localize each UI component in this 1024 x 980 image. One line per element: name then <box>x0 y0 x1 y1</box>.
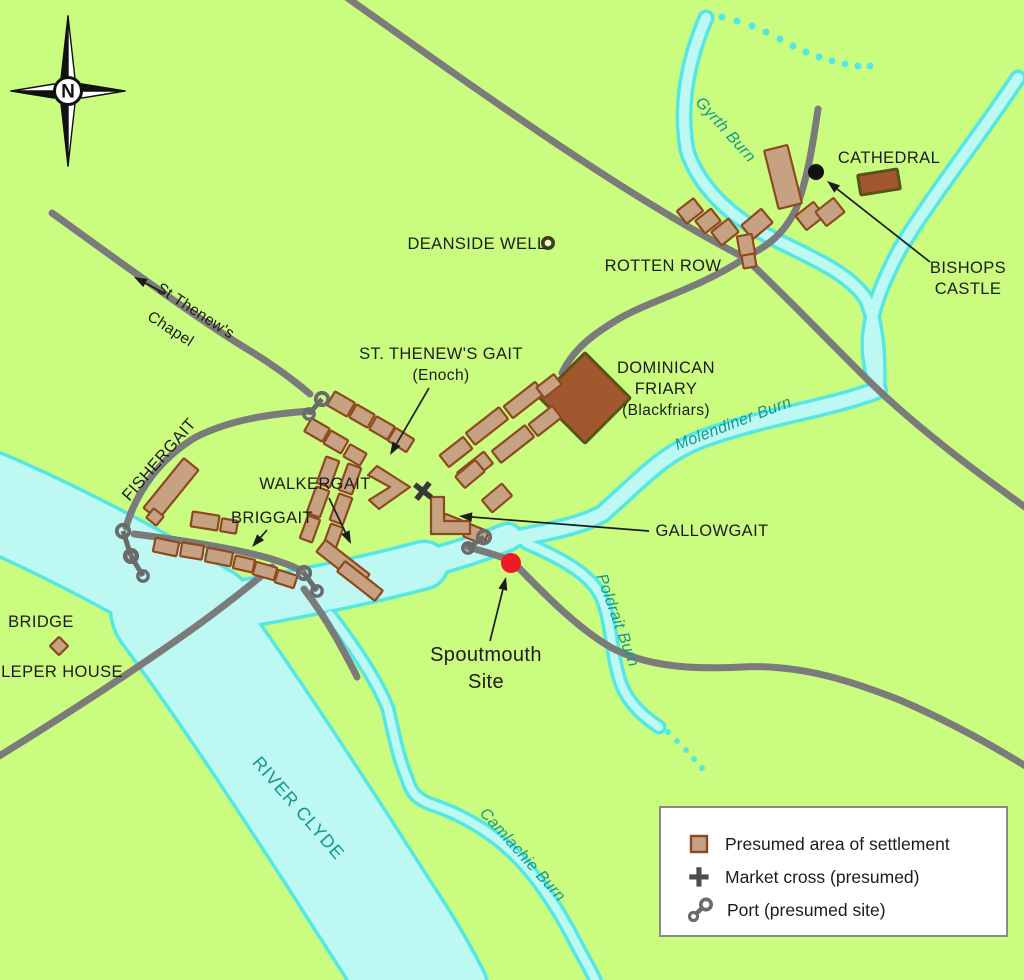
compass-rose: N <box>11 16 125 166</box>
gyrth-burn-dotted <box>749 23 756 30</box>
poldrait-burn-dotted <box>665 729 671 735</box>
spoutmouth-arrow-line <box>490 590 503 641</box>
port-icon <box>687 897 713 923</box>
bridge-building <box>50 637 68 655</box>
legend: Presumed area of settlement Market cross… <box>659 806 1008 937</box>
map-stage: CATHEDRALBISHOPSCASTLEROTTEN ROWDEANSIDE… <box>0 0 1024 980</box>
poldrait-burn-dotted <box>674 738 680 744</box>
settlement-building <box>482 484 512 513</box>
settlement-building <box>440 437 473 467</box>
settlement-building <box>492 425 534 463</box>
dominican-friary-label-1: DOMINICAN <box>617 359 715 377</box>
gyrth-burn-dotted <box>734 18 741 25</box>
spoutmouth-site-dot <box>501 553 521 573</box>
leper-house-label: LEPER HOUSE <box>1 663 123 681</box>
settlement-building <box>466 407 508 445</box>
gyrth-burn-dotted <box>842 61 849 68</box>
st-thenews-gait-arrow-line <box>397 388 429 444</box>
briggait-arrow-line <box>261 530 267 537</box>
legend-label-settlement: Presumed area of settlement <box>725 834 950 855</box>
cathedral-building <box>858 169 901 195</box>
bishops-castle-dot <box>808 164 824 180</box>
dominican-friary-label-3: (Blackfriars) <box>622 402 710 419</box>
gyrth-burn-label: Gyrth Burn <box>692 94 759 166</box>
settlement-building <box>190 511 219 530</box>
legend-label-port: Port (presumed site) <box>727 900 886 921</box>
briggait-label: BRIGGAIT <box>231 509 313 527</box>
gyrth-burn-dotted <box>867 63 874 70</box>
settlement-building <box>764 145 802 209</box>
st-thenews-gait-label-1: ST. THENEW'S GAIT <box>359 345 523 363</box>
poldrait-burn-dotted <box>691 756 697 762</box>
rotten-row-label: ROTTEN ROW <box>605 257 722 275</box>
gyrth-burn-dotted <box>790 43 797 50</box>
settlement-chevron-west <box>368 466 410 509</box>
settlement-building <box>180 542 204 559</box>
deanside-well-label: DEANSIDE WELL <box>407 235 546 253</box>
road-gallowgait-east <box>468 547 1024 770</box>
bridge-label: BRIDGE <box>8 613 74 631</box>
walkergait-label: WALKERGAIT <box>259 475 371 493</box>
legend-label-market-cross: Market cross (presumed) <box>725 867 920 888</box>
spoutmouth-arrow-head <box>498 577 507 591</box>
gyrth-burn-dotted <box>829 58 836 65</box>
gyrth-burn-dotted <box>763 29 770 36</box>
bishops-castle-arrow-head <box>827 181 840 193</box>
cathedral-label: CATHEDRAL <box>838 149 940 167</box>
dominican-friary-label-2: FRIARY <box>635 380 698 398</box>
gyrth-burn-dotted <box>816 54 823 61</box>
gallowgait-label: GALLOWGAIT <box>655 522 768 540</box>
st-thenews-gait-label-2: (Enoch) <box>412 367 469 384</box>
settlement-building <box>330 493 353 524</box>
spoutmouth-site-label-2: Site <box>468 671 504 693</box>
legend-row-market-cross: Market cross (presumed) <box>687 864 996 890</box>
settlement-swatch-icon <box>687 832 711 856</box>
poldrait-burn-dotted <box>699 765 705 771</box>
poldrait-burn-dotted <box>683 747 689 753</box>
market-cross-icon <box>687 865 711 889</box>
settlement-building <box>343 444 366 466</box>
settlement-building <box>741 253 756 268</box>
settlement-building <box>529 406 562 436</box>
spoutmouth-site-label-1: Spoutmouth <box>430 644 542 666</box>
castle-burn-water-edge <box>869 78 1018 390</box>
gyrth-burn-dotted <box>803 49 810 56</box>
bishops-castle-label-2: CASTLE <box>935 280 1002 298</box>
gyrth-burn-dotted <box>719 14 726 21</box>
compass-north-letter: N <box>61 82 75 103</box>
gyrth-burn-dotted <box>777 36 784 43</box>
bishops-castle-label-1: BISHOPS <box>930 259 1006 277</box>
camlachie-burn-label: Camlachie Burn <box>476 805 569 905</box>
settlement-building <box>815 198 844 226</box>
legend-row-port: Port (presumed site) <box>687 897 996 923</box>
legend-row-settlement: Presumed area of settlement <box>687 831 996 857</box>
settlement-building <box>233 555 255 572</box>
gyrth-burn-dotted <box>855 63 862 70</box>
